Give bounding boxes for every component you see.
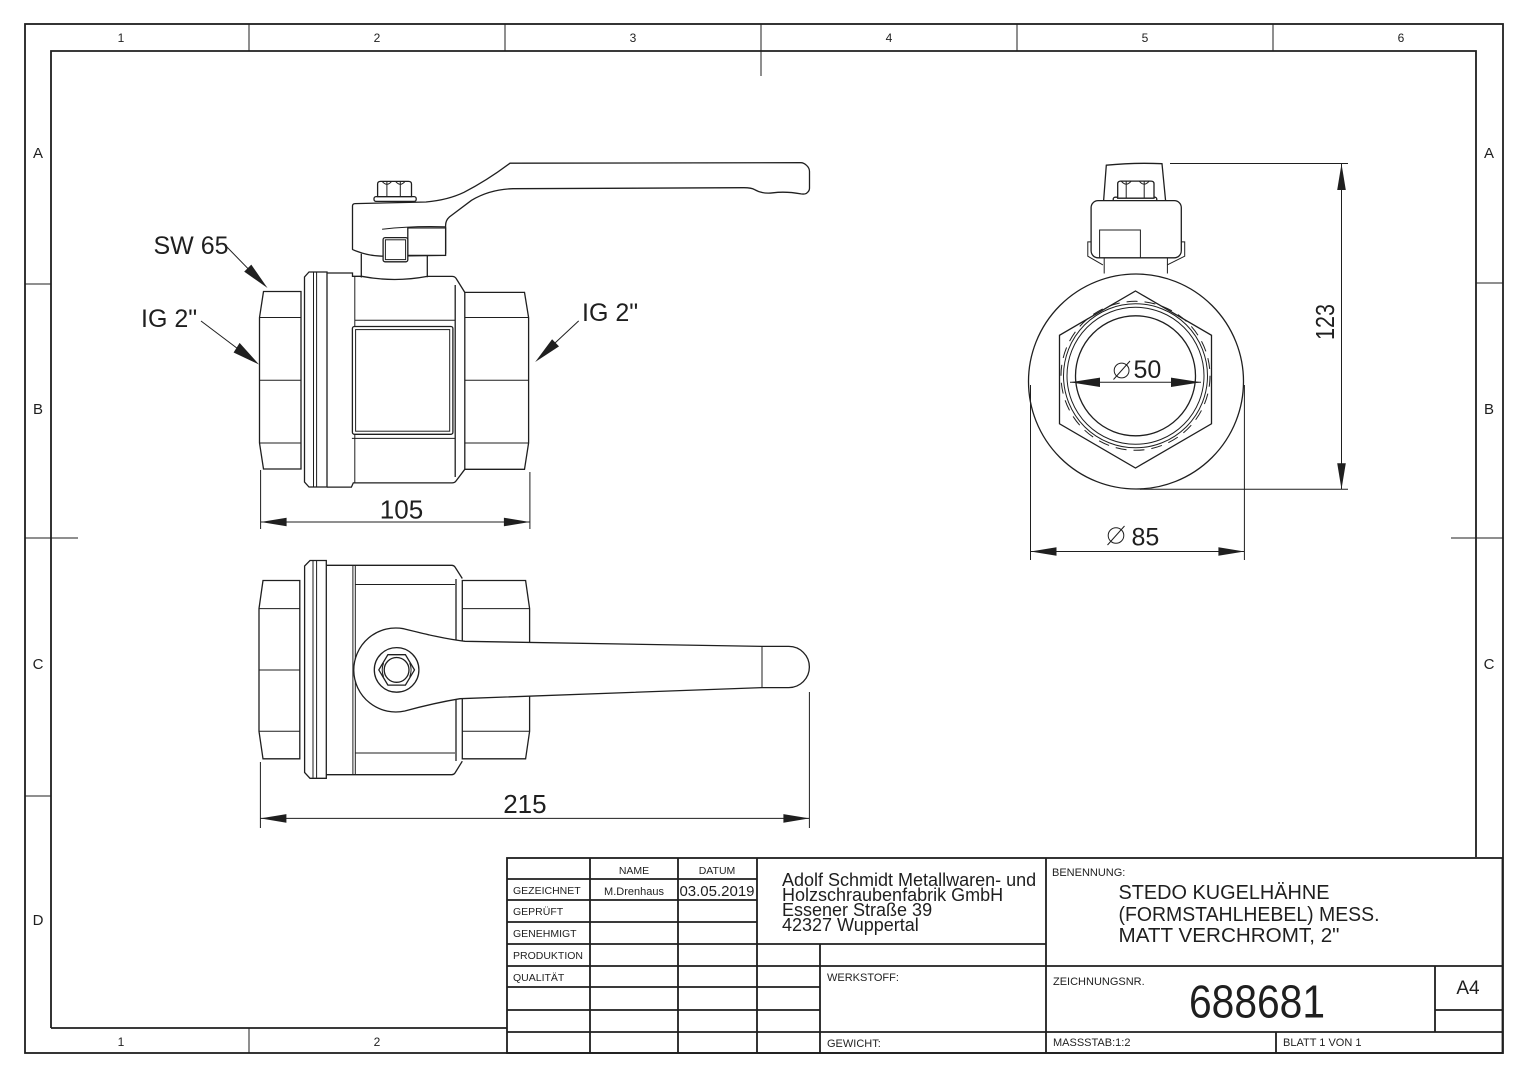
svg-text:GEWICHT:: GEWICHT: [827,1038,881,1050]
svg-text:1: 1 [118,1035,125,1049]
svg-text:M.Drenhaus: M.Drenhaus [604,886,664,898]
svg-text:C: C [33,656,44,673]
svg-text:B: B [33,401,43,418]
svg-text:03.05.2019: 03.05.2019 [679,883,754,900]
svg-text:5: 5 [1142,31,1149,45]
svg-text:A: A [33,145,43,162]
svg-text:215: 215 [503,789,546,819]
svg-text:123: 123 [1310,304,1340,340]
svg-text:MASSSTAB:1:2: MASSSTAB:1:2 [1053,1037,1130,1049]
svg-text:42327 Wuppertal: 42327 Wuppertal [782,915,919,935]
svg-text:6: 6 [1398,31,1405,45]
svg-text:50: 50 [1134,356,1162,384]
svg-text:2: 2 [374,1035,381,1049]
svg-text:DATUM: DATUM [699,865,736,877]
svg-text:WERKSTOFF:: WERKSTOFF: [827,972,899,984]
svg-text:B: B [1484,401,1494,418]
svg-text:PRODUKTION: PRODUKTION [513,950,583,962]
svg-text:IG 2": IG 2" [582,299,638,327]
svg-text:3: 3 [630,31,637,45]
svg-text:GEPRÜFT: GEPRÜFT [513,906,564,918]
svg-text:688681: 688681 [1189,976,1325,1028]
svg-text:STEDO KUGELHÄHNE: STEDO KUGELHÄHNE [1119,882,1330,904]
svg-text:105: 105 [380,495,423,525]
svg-text:A4: A4 [1456,978,1480,999]
svg-text:(FORMSTAHLHEBEL) MESS.: (FORMSTAHLHEBEL) MESS. [1119,904,1380,926]
svg-text:BLATT 1 VON 1: BLATT 1 VON 1 [1283,1037,1361,1049]
svg-text:BENENNUNG:: BENENNUNG: [1052,867,1125,879]
svg-text:85: 85 [1132,524,1160,552]
svg-text:A: A [1484,145,1494,162]
svg-text:1: 1 [118,31,125,45]
svg-text:IG 2": IG 2" [141,305,197,333]
svg-text:MATT VERCHROMT, 2": MATT VERCHROMT, 2" [1119,925,1340,947]
svg-text:GEZEICHNET: GEZEICHNET [513,885,581,897]
svg-text:C: C [1484,656,1495,673]
svg-text:D: D [33,912,44,929]
svg-text:ZEICHNUNGSNR.: ZEICHNUNGSNR. [1053,976,1145,988]
svg-text:4: 4 [886,31,893,45]
svg-text:2: 2 [374,31,381,45]
svg-text:NAME: NAME [619,865,649,877]
svg-text:GENEHMIGT: GENEHMIGT [513,928,577,940]
svg-text:SW 65: SW 65 [154,232,229,260]
svg-text:QUALITÄT: QUALITÄT [513,972,565,984]
